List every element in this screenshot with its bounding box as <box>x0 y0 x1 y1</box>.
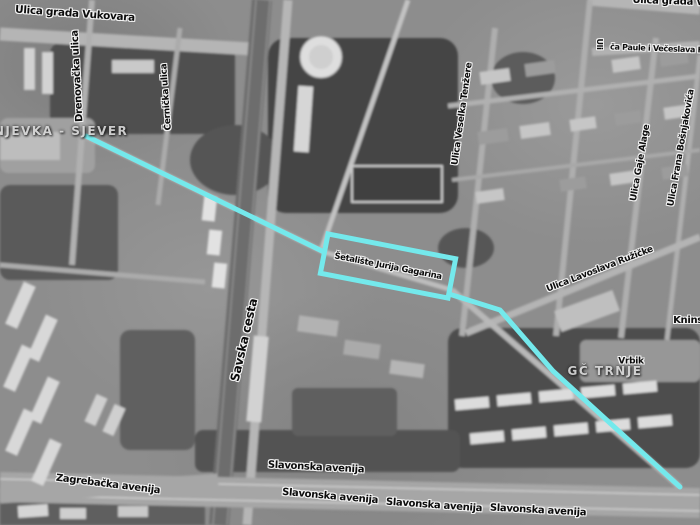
map-canvas[interactable]: Ulica grada VukovaraUlica grada VUliča P… <box>0 0 700 525</box>
route-layer <box>0 0 700 525</box>
route-line-end <box>449 294 680 487</box>
route-highlight-box <box>320 234 455 298</box>
route-line-start <box>86 136 324 252</box>
